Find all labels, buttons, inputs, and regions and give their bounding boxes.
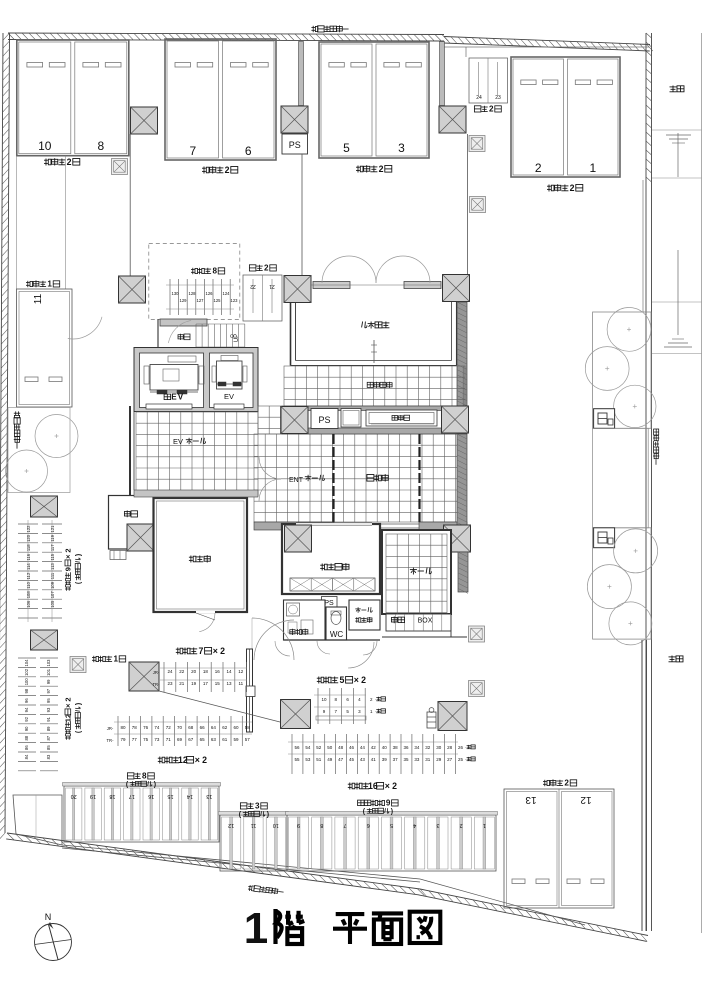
svg-text:9: 9 [297, 822, 300, 828]
svg-text:3: 3 [436, 822, 439, 828]
svg-text:6: 6 [245, 144, 252, 158]
svg-text:2: 2 [220, 646, 225, 656]
svg-text:64: 64 [211, 725, 217, 730]
svg-text:10: 10 [273, 822, 279, 828]
svg-text:V: V [178, 393, 184, 402]
svg-text:67: 67 [188, 737, 194, 742]
svg-text:13: 13 [206, 793, 212, 799]
svg-text:10: 10 [321, 697, 327, 702]
svg-text:101: 101 [46, 668, 51, 676]
svg-text:65: 65 [200, 737, 206, 742]
svg-text:118: 118 [26, 544, 31, 551]
svg-text:12: 12 [580, 794, 592, 805]
svg-text:20: 20 [71, 793, 77, 799]
svg-text:69: 69 [177, 737, 183, 742]
svg-text:18: 18 [109, 793, 115, 799]
svg-text:1: 1 [113, 655, 118, 664]
svg-text:97: 97 [46, 688, 51, 693]
svg-text:5: 5 [343, 141, 350, 155]
svg-text:79: 79 [120, 737, 126, 742]
svg-text:): ) [267, 811, 269, 818]
svg-text:41: 41 [371, 757, 377, 762]
svg-text:76: 76 [143, 725, 149, 730]
svg-text:120: 120 [26, 534, 31, 542]
svg-text:34: 34 [414, 745, 420, 750]
svg-text:29: 29 [436, 757, 442, 762]
svg-text:72: 72 [166, 725, 172, 730]
svg-text:8: 8 [142, 772, 147, 781]
svg-text:23: 23 [167, 681, 173, 686]
svg-text:102: 102 [24, 668, 29, 676]
svg-text:111: 111 [50, 572, 55, 579]
svg-text:103: 103 [46, 659, 51, 667]
svg-text:ENT: ENT [289, 477, 304, 484]
svg-text:JR-: JR- [107, 726, 114, 731]
svg-text:78: 78 [132, 725, 138, 730]
svg-text:71: 71 [166, 737, 172, 742]
svg-text:25: 25 [458, 757, 464, 762]
svg-text:20: 20 [191, 669, 197, 674]
svg-text:2: 2 [392, 781, 397, 791]
svg-text:124: 124 [223, 291, 231, 296]
svg-text:39: 39 [382, 757, 388, 762]
svg-text:73: 73 [154, 737, 160, 742]
svg-text:×: × [64, 703, 73, 708]
svg-text:27: 27 [447, 757, 453, 762]
svg-text:18: 18 [203, 669, 209, 674]
svg-text:13: 13 [525, 794, 537, 805]
svg-text:10: 10 [38, 139, 52, 153]
svg-text:94: 94 [24, 707, 29, 712]
svg-text:37: 37 [393, 757, 399, 762]
svg-text:100: 100 [24, 678, 29, 686]
svg-text:127: 127 [197, 298, 205, 303]
svg-text:N: N [45, 912, 52, 922]
svg-text:26: 26 [458, 745, 464, 750]
svg-text:129: 129 [180, 298, 188, 303]
svg-text:68: 68 [188, 725, 194, 730]
svg-text:19: 19 [191, 681, 197, 686]
svg-text:90: 90 [24, 726, 29, 731]
svg-text:11: 11 [238, 681, 243, 686]
svg-text:117: 117 [50, 544, 55, 551]
svg-text:47: 47 [338, 757, 344, 762]
svg-text:E: E [171, 393, 177, 402]
svg-text:3: 3 [398, 141, 405, 155]
svg-text:22: 22 [179, 669, 185, 674]
svg-text:9: 9 [64, 567, 73, 571]
svg-text:46: 46 [349, 745, 355, 750]
svg-text:16: 16 [148, 793, 154, 799]
svg-text:106: 106 [26, 600, 31, 608]
svg-text:122: 122 [26, 525, 31, 533]
svg-text:32: 32 [425, 745, 431, 750]
svg-text:22: 22 [250, 283, 256, 289]
svg-text:×: × [354, 675, 359, 685]
svg-text:BOX: BOX [418, 618, 433, 625]
svg-text:2: 2 [489, 105, 494, 114]
svg-text:2: 2 [67, 157, 72, 167]
svg-text:7: 7 [198, 646, 203, 656]
svg-text:2: 2 [379, 164, 384, 174]
svg-text:JR-: JR- [153, 670, 160, 675]
svg-text:38: 38 [393, 745, 399, 750]
svg-text:44: 44 [360, 745, 366, 750]
svg-text:24: 24 [167, 669, 173, 674]
svg-text:PS: PS [289, 140, 301, 150]
svg-text:19: 19 [90, 793, 96, 799]
svg-text:51: 51 [316, 757, 322, 762]
svg-text:75: 75 [143, 737, 149, 742]
svg-text:95: 95 [46, 698, 51, 703]
svg-text:21: 21 [179, 681, 185, 686]
svg-text:99: 99 [46, 679, 51, 684]
svg-text:×: × [64, 554, 73, 559]
svg-text:7: 7 [189, 144, 196, 158]
svg-text:WC: WC [330, 630, 344, 639]
svg-text:23: 23 [495, 95, 501, 101]
svg-text:128: 128 [189, 291, 197, 296]
svg-text:52: 52 [316, 745, 322, 750]
svg-text:TR-: TR- [153, 682, 161, 687]
svg-text:109: 109 [50, 581, 55, 589]
svg-text:48: 48 [338, 745, 344, 750]
svg-text:83: 83 [46, 754, 51, 759]
svg-text:119: 119 [50, 534, 55, 541]
svg-text:17: 17 [129, 793, 135, 799]
svg-text:85: 85 [46, 745, 51, 750]
svg-text:57: 57 [245, 737, 251, 742]
svg-text:84: 84 [24, 754, 29, 759]
svg-text:): ) [75, 554, 82, 556]
svg-text:36: 36 [403, 745, 409, 750]
svg-text:50: 50 [327, 745, 333, 750]
svg-text:121: 121 [50, 525, 55, 533]
svg-text:17: 17 [203, 681, 209, 686]
svg-text:): ) [391, 808, 393, 815]
svg-text:107: 107 [50, 591, 55, 599]
svg-text:×: × [385, 781, 390, 791]
svg-text:2: 2 [570, 183, 575, 193]
svg-text:80: 80 [120, 725, 126, 730]
svg-text:112: 112 [26, 572, 31, 579]
svg-text:1: 1 [47, 280, 52, 289]
svg-text:9: 9 [386, 799, 391, 808]
svg-text:×: × [195, 755, 200, 765]
svg-text:14: 14 [226, 669, 232, 674]
svg-text:1: 1 [589, 161, 596, 175]
svg-text:UP: UP [234, 334, 240, 342]
svg-text:130: 130 [172, 291, 180, 296]
svg-text:TR-: TR- [107, 738, 115, 743]
svg-text:4: 4 [413, 822, 416, 828]
svg-text:93: 93 [46, 707, 51, 712]
svg-text:43: 43 [360, 757, 366, 762]
svg-text:53: 53 [305, 757, 311, 762]
svg-text:2: 2 [460, 822, 463, 828]
svg-text:89: 89 [46, 726, 51, 731]
svg-text:EV: EV [224, 392, 234, 401]
svg-text:2: 2 [225, 165, 230, 175]
svg-text:110: 110 [26, 581, 31, 588]
svg-text:21: 21 [269, 283, 275, 289]
svg-text:61: 61 [222, 737, 228, 742]
svg-text:62: 62 [222, 725, 228, 730]
svg-text:40: 40 [382, 745, 388, 750]
svg-text:PS: PS [318, 415, 330, 425]
svg-text:45: 45 [349, 757, 355, 762]
svg-text:12: 12 [238, 669, 244, 674]
svg-text:104: 104 [24, 659, 29, 667]
svg-text:96: 96 [24, 698, 29, 703]
svg-text:70: 70 [177, 725, 183, 730]
svg-text:): ) [75, 703, 82, 705]
svg-text:77: 77 [132, 737, 138, 742]
svg-text:2: 2 [64, 697, 73, 701]
svg-text:108: 108 [26, 591, 31, 599]
svg-text:11: 11 [251, 822, 257, 828]
svg-text:1: 1 [244, 904, 268, 953]
svg-text:123: 123 [231, 298, 239, 303]
svg-text:49: 49 [327, 757, 333, 762]
svg-text:2: 2 [564, 779, 569, 788]
svg-text:31: 31 [425, 757, 431, 762]
svg-text:13: 13 [226, 681, 232, 686]
svg-text:16: 16 [215, 669, 221, 674]
svg-text:12: 12 [228, 822, 234, 828]
svg-text:113: 113 [50, 563, 55, 570]
svg-text:2: 2 [361, 675, 366, 685]
svg-text:87: 87 [46, 735, 51, 740]
svg-text:60: 60 [233, 725, 239, 730]
svg-text:24: 24 [476, 95, 482, 101]
svg-text:2: 2 [64, 548, 73, 552]
svg-text:8: 8 [97, 139, 104, 153]
svg-text:56: 56 [294, 745, 300, 750]
svg-text:3: 3 [255, 802, 260, 811]
svg-text:×: × [213, 646, 218, 656]
svg-text:15: 15 [215, 681, 221, 686]
svg-text:EV: EV [173, 437, 183, 446]
svg-text:6: 6 [367, 822, 370, 828]
svg-text:42: 42 [371, 745, 377, 750]
svg-text:35: 35 [403, 757, 409, 762]
svg-text:74: 74 [154, 725, 160, 730]
svg-text:66: 66 [200, 725, 206, 730]
svg-text:91: 91 [46, 716, 51, 721]
svg-text:2: 2 [264, 264, 269, 273]
svg-text:114: 114 [26, 563, 31, 570]
svg-text:8: 8 [320, 822, 323, 828]
svg-text:115: 115 [50, 553, 55, 560]
svg-text:125: 125 [214, 298, 222, 303]
svg-text:54: 54 [305, 745, 311, 750]
svg-text:5: 5 [390, 822, 393, 828]
svg-text:116: 116 [26, 553, 31, 560]
svg-text:2: 2 [202, 755, 207, 765]
svg-text:59: 59 [233, 737, 239, 742]
svg-text:58: 58 [245, 725, 251, 730]
svg-text:92: 92 [24, 716, 29, 721]
svg-text:86: 86 [24, 745, 29, 750]
svg-text:): ) [154, 781, 156, 788]
svg-text:11: 11 [33, 293, 44, 304]
svg-text:28: 28 [447, 745, 453, 750]
svg-text:88: 88 [24, 735, 29, 740]
svg-text:2: 2 [535, 161, 542, 175]
svg-text:5: 5 [339, 675, 344, 685]
svg-text:PS: PS [324, 600, 334, 607]
svg-text:63: 63 [211, 737, 217, 742]
svg-text:8: 8 [212, 267, 217, 276]
svg-text:1: 1 [483, 822, 486, 828]
svg-text:55: 55 [294, 757, 300, 762]
svg-text:30: 30 [436, 745, 442, 750]
svg-text:98: 98 [24, 688, 29, 693]
svg-text:14: 14 [187, 793, 193, 799]
svg-text:105: 105 [50, 600, 55, 608]
svg-text:15: 15 [167, 793, 173, 799]
svg-text:33: 33 [414, 757, 420, 762]
svg-text:7: 7 [343, 822, 346, 828]
svg-text:126: 126 [206, 291, 214, 296]
